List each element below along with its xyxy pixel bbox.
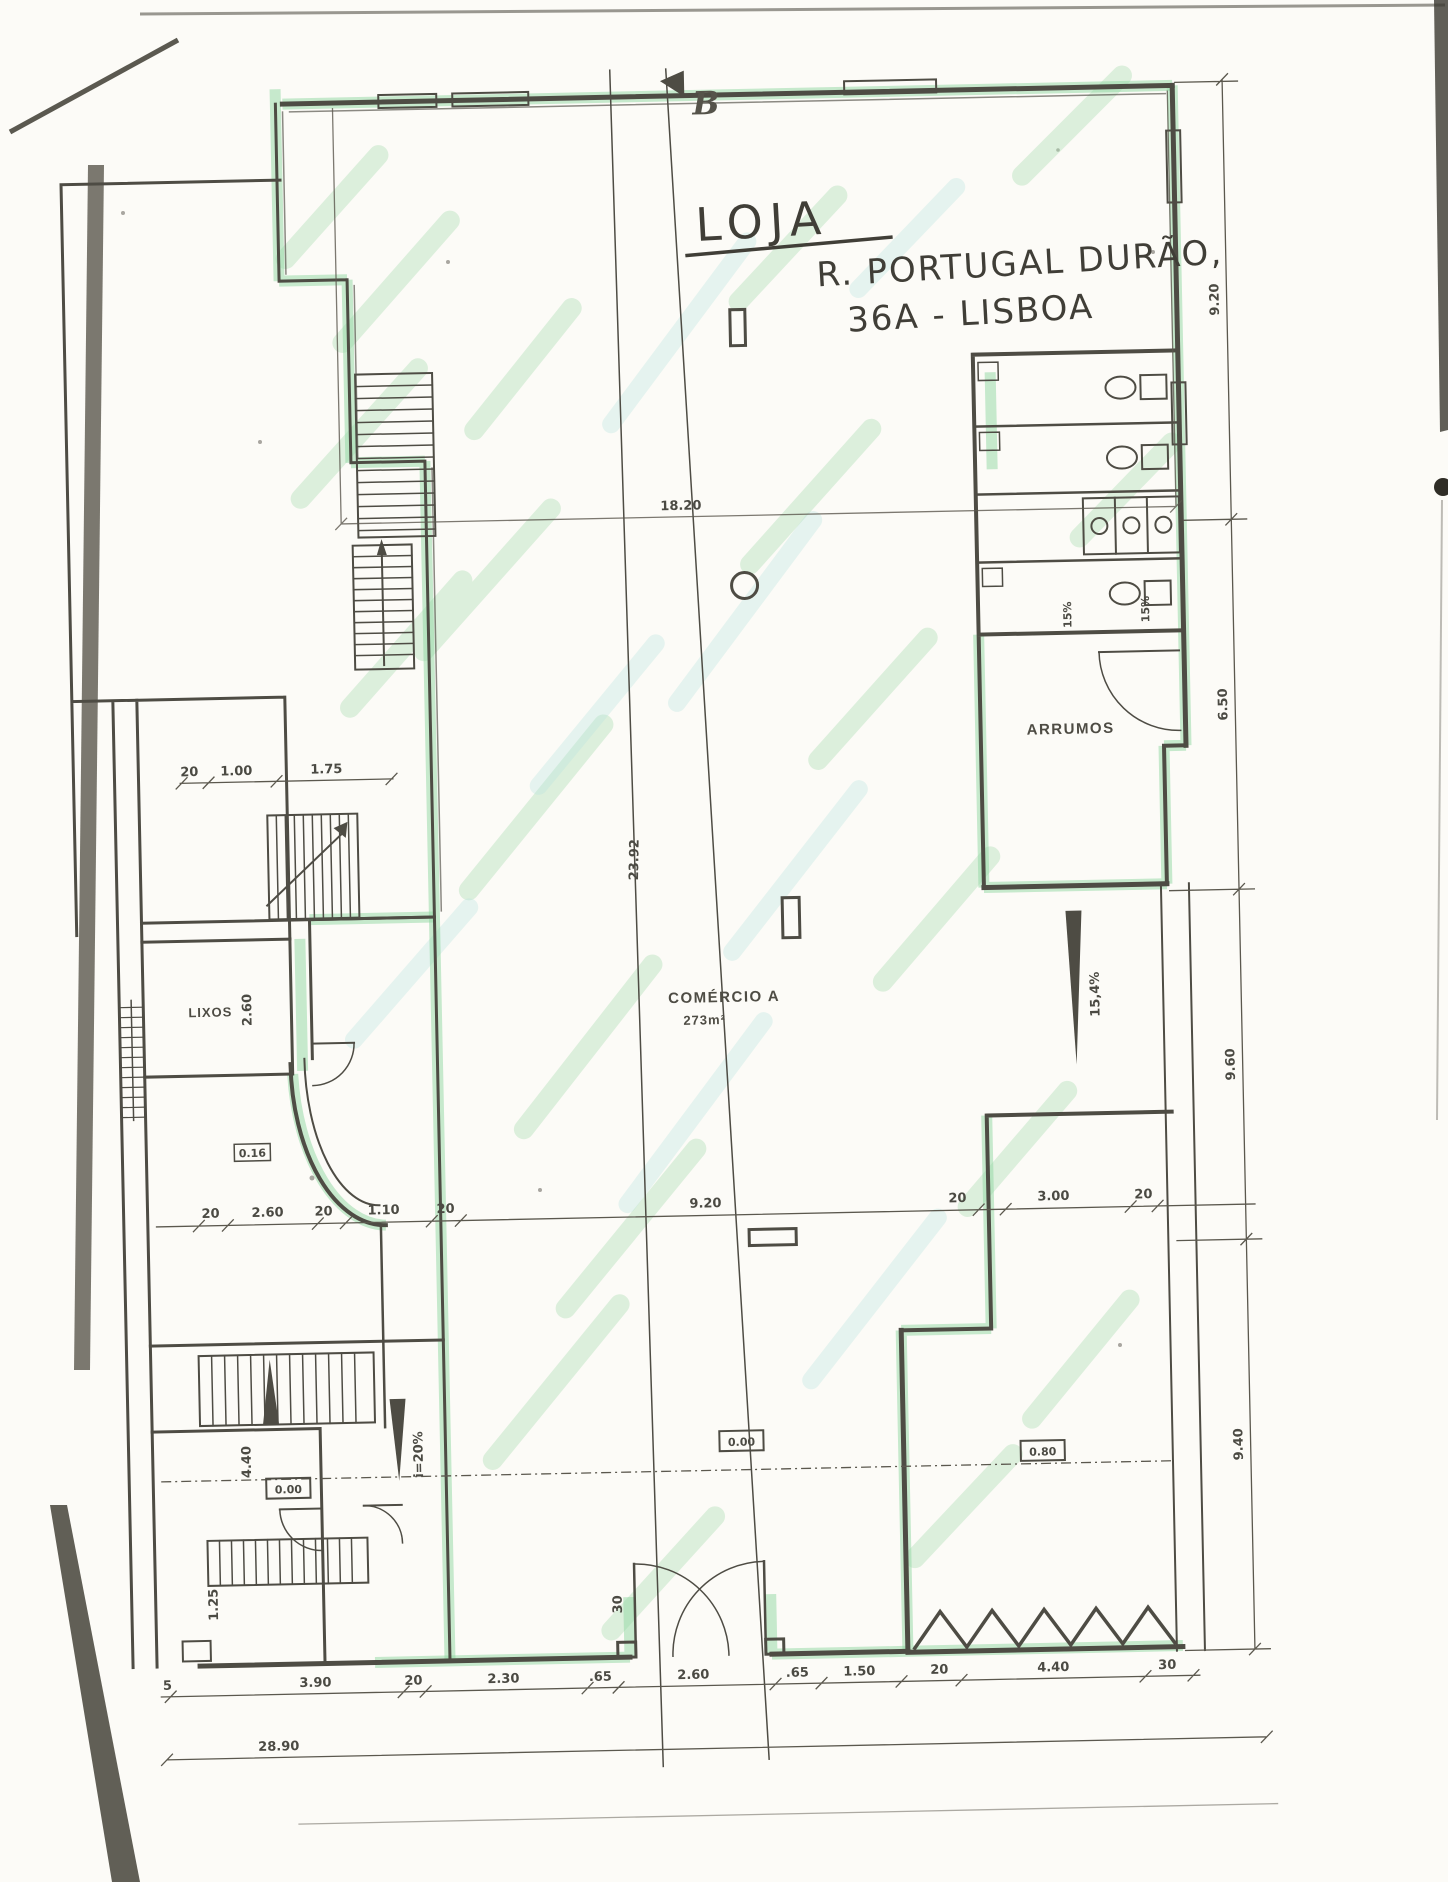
dim-step-width: 1.25 [206, 1589, 222, 1621]
title-loja: LOJA [694, 191, 829, 252]
dim-bot-2: 3.90 [299, 1675, 331, 1691]
dim-ul-3: 1.75 [310, 762, 342, 778]
scan-blob-right [1434, 478, 1448, 496]
dim-mid-3: 20 [314, 1204, 332, 1219]
lixos-corner-walls [289, 917, 437, 1071]
dim-bot-11: 30 [1158, 1658, 1176, 1673]
curved-wall-outer [290, 1062, 385, 1227]
title-street: R. PORTUGAL DURÃO, [816, 233, 1225, 296]
dim-bot-5: .65 [589, 1670, 612, 1685]
dim-bot-9: 20 [930, 1662, 948, 1677]
room-label-lixos: LIXOS [188, 1004, 232, 1020]
dim-top-label: 18.20 [660, 498, 701, 514]
green-lixos-boundary [299, 917, 437, 1071]
lower-left-doors [280, 1505, 403, 1552]
lixos-door [312, 1043, 355, 1086]
dim-bot-8: 1.50 [843, 1664, 875, 1680]
dim-total-label: 28.90 [258, 1739, 299, 1755]
lower-stair-treads [212, 1353, 356, 1426]
dim-right-4: 9.40 [1231, 1428, 1247, 1460]
dim-bot-3: 20 [404, 1673, 422, 1688]
level-right: 0.80 [1029, 1445, 1057, 1459]
scan-edge-left [74, 165, 104, 1370]
column-3 [749, 1229, 796, 1246]
room-label-comercio: COMÉRCIO A [668, 988, 780, 1007]
scan-edge-top [140, 5, 1445, 14]
slope-right-ramp: 15,4% [1088, 972, 1104, 1017]
dim-bot-4: 2.30 [487, 1671, 519, 1687]
ramp-arrow-left [390, 1399, 408, 1481]
scan-edge-right-thin [1437, 500, 1442, 1120]
stair-lobby-wall [381, 1225, 385, 1427]
entrance-jambs [618, 1639, 784, 1657]
dim-bot-6: 2.60 [677, 1667, 709, 1683]
plan: 18.20 9.20 6.50 9.60 9.40 20 2.60 20 1.1… [59, 57, 1278, 1828]
level-center: 0.00 [728, 1435, 756, 1449]
column-2 [782, 897, 800, 937]
dim-ul-2: 1.00 [220, 764, 252, 780]
wc-block-walls [973, 350, 1189, 887]
scan-edge-bottom-left [50, 1505, 140, 1882]
green-right-wall [967, 85, 1189, 887]
column-1 [730, 309, 746, 345]
dim-door-jamb: 30 [611, 1595, 626, 1613]
ramp-arrow-right [1065, 911, 1084, 1065]
floor-plan-scan: 18.20 9.20 6.50 9.60 9.40 20 2.60 20 1.1… [0, 0, 1448, 1882]
side-stair-arrow [131, 1000, 134, 1120]
green-wc-wall-blob [990, 372, 992, 469]
dim-mid-9: 20 [1134, 1187, 1152, 1202]
stair-arrow-line [382, 552, 384, 665]
dim-mid-5: 20 [436, 1202, 454, 1217]
dim-section-length: 23.92 [627, 839, 643, 880]
dim-mid-4: 1.10 [367, 1203, 399, 1219]
slope-wc-a: 15% [1139, 596, 1153, 623]
scan-edge-right [1434, 0, 1448, 432]
room-label-arrumos: ARRUMOS [1026, 720, 1114, 739]
wc-fixtures [978, 358, 1181, 608]
dim-right-3: 9.60 [1223, 1048, 1239, 1080]
right-party-walls [1161, 883, 1205, 1650]
title-city: 36A - LISBOA [846, 287, 1095, 341]
section-marker-b: B [691, 84, 720, 123]
doors [262, 650, 1200, 1664]
dim-ul-1: 20 [180, 765, 198, 780]
scan-edge-top-left [10, 40, 178, 132]
dim-mid-row: 20 2.60 20 1.10 20 9.20 20 3.00 20 [155, 1185, 1255, 1233]
dim-mid-6: 9.20 [689, 1196, 721, 1212]
curved-wall-inner [304, 1057, 379, 1206]
dim-mid-1: 20 [201, 1207, 219, 1222]
dim-total: 28.90 [161, 1719, 1279, 1827]
dim-mid-2: 2.60 [251, 1205, 283, 1221]
level-upper: 0.16 [239, 1147, 267, 1161]
dim-right-1: 9.20 [1207, 283, 1223, 315]
dim-right-2: 6.50 [1216, 688, 1232, 720]
dim-bot-7: .65 [786, 1665, 809, 1680]
room-label-comercio-area: 273m² [683, 1012, 726, 1028]
toilet-1 [1105, 375, 1166, 400]
dim-bot-10: 4.40 [1037, 1660, 1069, 1676]
stair-arrow-head [377, 539, 387, 555]
bottom-left-fixture [183, 1641, 211, 1662]
scanned-floor-plan-sheet: 18.20 9.20 6.50 9.60 9.40 20 2.60 20 1.1… [0, 0, 1448, 1882]
level-left: 0.00 [275, 1483, 303, 1497]
bottom-stair-treads [219, 1538, 352, 1586]
slope-left-ramp: i=20% [411, 1431, 427, 1478]
dim-mid-7: 20 [948, 1191, 966, 1206]
dim-lixos-height: 2.60 [240, 994, 256, 1026]
dim-mid-8: 3.00 [1037, 1189, 1069, 1205]
lower-left-room-walls [150, 1340, 450, 1667]
dim-room-height: 4.40 [239, 1446, 255, 1478]
level-dash-line [161, 1461, 1171, 1482]
slope-wc-b: 15% [1061, 601, 1075, 628]
dim-bot-1: 5 [163, 1679, 172, 1694]
